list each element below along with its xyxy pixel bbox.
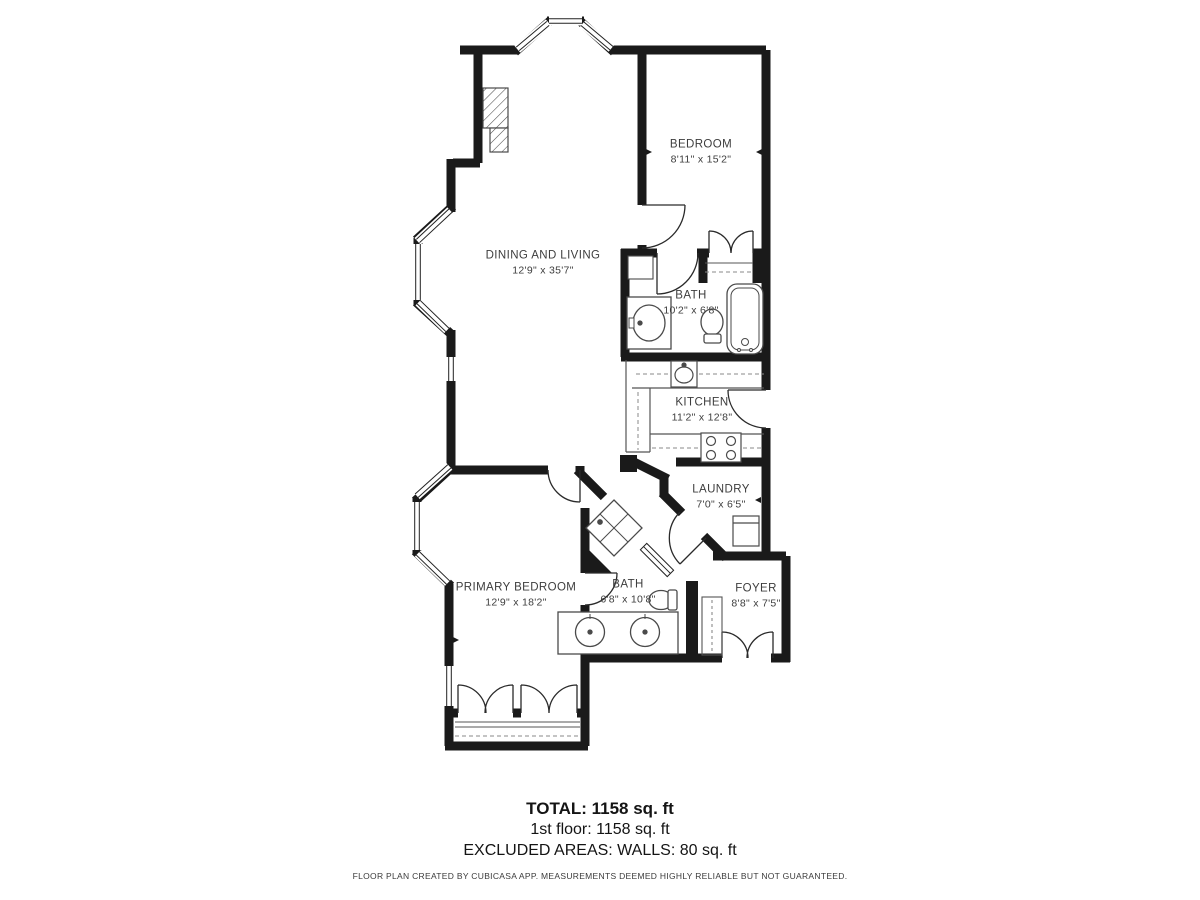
wall-fills bbox=[453, 149, 762, 643]
total-area-text: TOTAL: 1158 sq. ft bbox=[0, 799, 1200, 819]
disclaimer-text: FLOOR PLAN CREATED BY CUBICASA APP. MEAS… bbox=[0, 871, 1200, 881]
laundry-door bbox=[669, 512, 706, 564]
floor-plan-page: BEDROOM 8'11" x 15'2" DINING AND LIVING … bbox=[0, 0, 1200, 900]
dimension-tick bbox=[453, 637, 459, 643]
kitchen-door bbox=[728, 390, 766, 428]
primary-bath-door bbox=[585, 573, 617, 605]
dimension-tick bbox=[756, 149, 762, 155]
closet-niche bbox=[628, 256, 653, 279]
entry-double-doors bbox=[722, 632, 773, 658]
stove bbox=[701, 433, 741, 462]
washer bbox=[733, 516, 759, 546]
floor-plan-drawing bbox=[0, 0, 1200, 900]
bedroom-door bbox=[642, 205, 685, 248]
dimension-tick bbox=[755, 497, 761, 503]
kitchen-sink bbox=[671, 361, 697, 387]
primary-closet-strip bbox=[455, 722, 580, 736]
shower bbox=[586, 500, 642, 556]
toilet bbox=[701, 309, 723, 343]
bedroom-closet bbox=[705, 263, 753, 272]
toilet bbox=[649, 590, 677, 610]
dimension-tick bbox=[646, 149, 652, 155]
windows bbox=[413, 17, 615, 707]
bedroom-closet-doors bbox=[709, 231, 753, 253]
fireplace bbox=[483, 88, 508, 152]
excluded-areas-text: EXCLUDED AREAS: WALLS: 80 sq. ft bbox=[0, 842, 1200, 860]
bath-upper-fixtures bbox=[627, 256, 763, 354]
bath-lower-fixtures bbox=[558, 590, 678, 654]
bath-upper-door bbox=[657, 253, 698, 294]
bathtub bbox=[727, 284, 763, 354]
sliding-door bbox=[640, 543, 673, 576]
primary-bedroom-door bbox=[548, 470, 580, 502]
foyer-closet bbox=[702, 597, 722, 655]
first-floor-area-text: 1st floor: 1158 sq. ft bbox=[0, 821, 1200, 839]
